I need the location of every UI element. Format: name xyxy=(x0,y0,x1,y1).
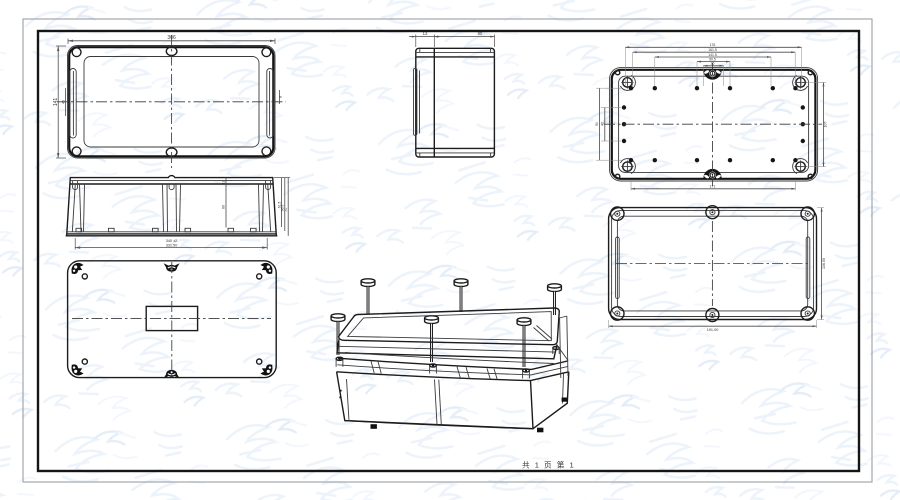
svg-text:171: 171 xyxy=(710,184,716,188)
svg-text:40: 40 xyxy=(62,100,66,104)
svg-text:8: 8 xyxy=(279,96,283,98)
svg-text:42: 42 xyxy=(601,122,605,126)
svg-text:26: 26 xyxy=(711,62,715,66)
svg-text:161.5: 161.5 xyxy=(708,48,717,52)
svg-text:141.5: 141.5 xyxy=(708,53,717,57)
svg-text:71: 71 xyxy=(284,208,288,212)
svg-text:141: 141 xyxy=(53,98,59,107)
svg-text:13: 13 xyxy=(222,181,226,185)
svg-text:191.00: 191.00 xyxy=(707,328,719,332)
svg-text:107: 107 xyxy=(823,122,827,128)
svg-text:340 ±2: 340 ±2 xyxy=(166,239,178,243)
svg-text:13: 13 xyxy=(423,31,428,36)
svg-text:176: 176 xyxy=(710,43,716,47)
svg-text:136.50: 136.50 xyxy=(822,258,826,269)
svg-text:60: 60 xyxy=(222,205,226,209)
svg-text:80: 80 xyxy=(478,31,483,36)
svg-text:90: 90 xyxy=(595,122,599,126)
svg-text:306: 306 xyxy=(167,35,176,41)
svg-text:共 1 页 第 1: 共 1 页 第 1 xyxy=(522,460,575,470)
svg-text:331.50: 331.50 xyxy=(166,243,178,247)
